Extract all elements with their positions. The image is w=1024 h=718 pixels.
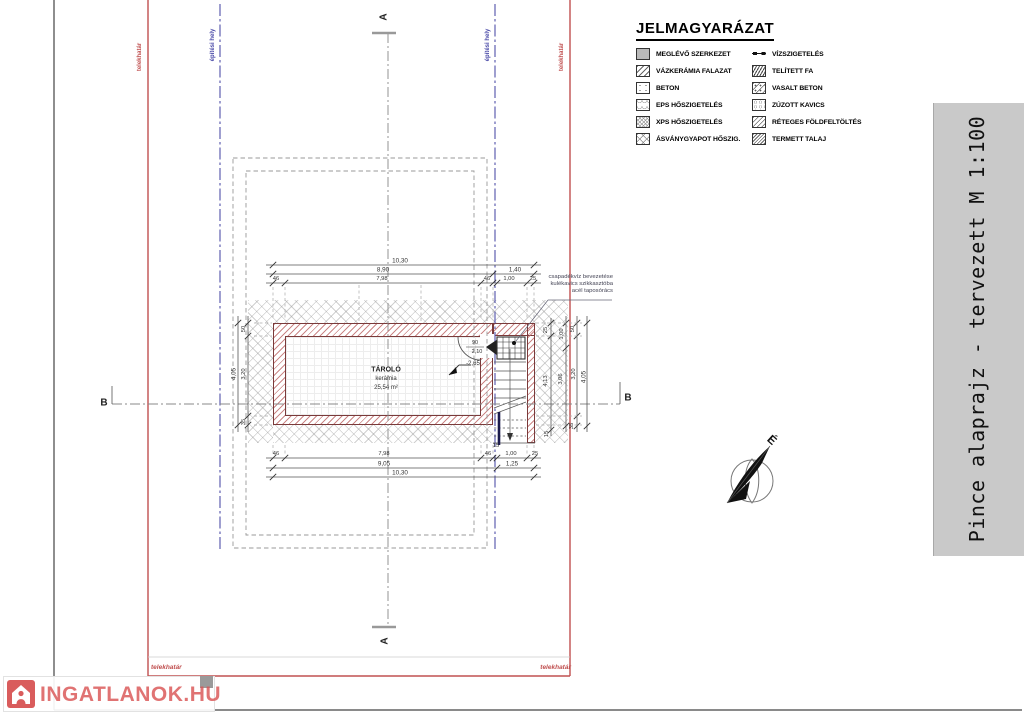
legend-swatch-clay-masonry	[636, 65, 650, 77]
dim-left-a: 50	[241, 326, 247, 332]
legend-item: MEGLÉVŐ SZERKEZET	[636, 48, 731, 60]
legend-item: ZÚZOTT KAVICS	[752, 99, 825, 111]
legend-swatch-mineral-wool	[636, 133, 650, 145]
legend-label: ZÚZOTT KAVICS	[772, 102, 825, 109]
dim-top-b: 1,40	[509, 267, 521, 274]
dim-bot-d: 1,00	[505, 451, 516, 457]
building-zone-label-left: építési hely	[210, 29, 216, 62]
legend-swatch-layered-fill	[752, 116, 766, 128]
house-logo-icon	[7, 680, 35, 713]
legend-item: VÍZSZIGETELÉS	[752, 48, 824, 60]
dim-bot-c: 46	[485, 451, 491, 457]
legend-swatch-xps-insulation	[636, 116, 650, 128]
section-a-marker-bottom: A	[380, 637, 391, 644]
dim-bot-a: 46	[273, 451, 279, 457]
legend-item: XPS HŐSZIGETELÉS	[636, 116, 722, 128]
dim-right-total: 4,05	[581, 371, 588, 383]
dim-left-c: 35	[241, 419, 247, 425]
dim-top-f: 1,00	[503, 276, 514, 282]
dim-stair-15: 15	[544, 431, 550, 437]
property-boundary-label-bottom-left: telekhatár	[151, 664, 182, 671]
legend-label: VÁZKERÁMIA FALAZAT	[656, 68, 732, 75]
legend-item: TELÍTETT FA	[752, 65, 813, 77]
legend-swatch-waterproofing	[752, 48, 766, 60]
dim-right-a: 1,00	[559, 328, 565, 339]
building-zone-label-right: építési hely	[485, 29, 491, 62]
legend-swatch-crushed-gravel	[752, 99, 766, 111]
legend-label: TERMETT TALAJ	[772, 136, 826, 143]
dim-bot-b: 7,98	[378, 451, 389, 457]
dim-bot-g: 1,25	[506, 461, 518, 468]
room-finish: kerámia	[375, 376, 396, 382]
drawing-title: Pince alaprajz - tervezett M 1:100	[965, 116, 989, 542]
stair-shaft-right-wall	[527, 323, 535, 443]
dim-bot-15: 15	[493, 443, 499, 449]
legend-label: MEGLÉVŐ SZERKEZET	[656, 51, 731, 58]
dim-top-d: 7,98	[376, 276, 387, 282]
legend-swatch-eps-insulation	[636, 99, 650, 111]
dim-left-b: 3,20	[241, 368, 247, 379]
drainage-note-line1: csapadékvíz bevezetése	[548, 274, 613, 281]
north-label: É	[764, 432, 779, 448]
legend-label: RÉTEGES FÖLDFELTÖLTÉS	[772, 119, 861, 126]
dim-stair-25: 25	[543, 327, 549, 333]
legend-swatch-natural-soil	[752, 133, 766, 145]
dim-right-e: 35	[569, 423, 575, 429]
legend-label: VÍZSZIGETELÉS	[772, 51, 824, 58]
dim-stair-length: 4,13	[543, 375, 549, 386]
dim-bot-total: 10,30	[392, 470, 408, 477]
legend-label: ÁSVÁNYGYAPOT HŐSZIG.	[656, 136, 740, 143]
dim-top-g: 25	[530, 276, 536, 282]
legend-swatch-reinforced-concrete	[752, 82, 766, 94]
dim-top-a: 8,90	[377, 267, 389, 274]
legend-label: VASALT BETON	[772, 85, 823, 92]
dim-left-total: 4,05	[231, 368, 238, 380]
plan-linework	[0, 0, 1024, 718]
watermark-text: INGATLANOK.HU	[40, 683, 221, 707]
floor-level-value: -2,65	[466, 361, 480, 367]
legend-item: EPS HŐSZIGETELÉS	[636, 99, 722, 111]
legend-label: XPS HŐSZIGETELÉS	[656, 119, 722, 126]
dim-bot-e: 25	[532, 451, 538, 457]
dim-right-c: 50	[570, 326, 576, 332]
section-b-marker-left: B	[100, 398, 107, 409]
drainage-note-line3: acél taposórács	[548, 288, 613, 295]
section-b-marker-right: B	[624, 393, 631, 404]
floor-plan-sheet: 10,30 8,90 1,40 46 7,98 46 1,00 25 46 7,…	[0, 0, 1024, 718]
legend-item: BETON	[636, 82, 679, 94]
dim-top-c: 46	[273, 276, 279, 282]
door-height: 2,10	[472, 349, 483, 355]
soil-hatch-bottom	[273, 425, 493, 443]
dim-right-b: 3,06	[558, 373, 564, 384]
legend-label: BETON	[656, 85, 679, 92]
legend-item: ÁSVÁNYGYAPOT HŐSZIG.	[636, 133, 740, 145]
room-name: TÁROLÓ	[371, 367, 401, 374]
legend-item: RÉTEGES FÖLDFELTÖLTÉS	[752, 116, 861, 128]
legend-swatch-concrete	[636, 82, 650, 94]
dim-top-e: 46	[484, 276, 490, 282]
door-width: 90	[472, 340, 478, 346]
dim-right-d: 3,20	[571, 368, 577, 379]
section-a-marker-top: A	[379, 13, 390, 20]
dim-top-total: 10,30	[392, 258, 408, 265]
legend-swatch-treated-wood	[752, 65, 766, 77]
legend-item: VÁZKERÁMIA FALAZAT	[636, 65, 732, 77]
legend-label: TELÍTETT FA	[772, 68, 813, 75]
soil-hatch-left	[248, 323, 273, 443]
legend-item: TERMETT TALAJ	[752, 133, 826, 145]
drainage-note: csapadékvíz bevezetése kulékavics szikka…	[548, 274, 613, 295]
drainage-note-line2: kulékavics szikkasztóba	[548, 281, 613, 288]
room-area: 25,54 m²	[374, 385, 398, 391]
dim-bot-f: 9,05	[378, 461, 390, 468]
soil-hatch-top	[248, 300, 568, 323]
legend-label: EPS HŐSZIGETELÉS	[656, 102, 722, 109]
legend-title: JELMAGYARÁZAT	[636, 20, 774, 41]
legend-item: VASALT BETON	[752, 82, 823, 94]
property-boundary-label-bottom-right: telekhatár	[540, 664, 571, 671]
property-boundary-label-left: telekhatár	[137, 43, 143, 71]
property-boundary-label-right: telekhatár	[559, 43, 565, 71]
legend-swatch-existing-structure	[636, 48, 650, 60]
